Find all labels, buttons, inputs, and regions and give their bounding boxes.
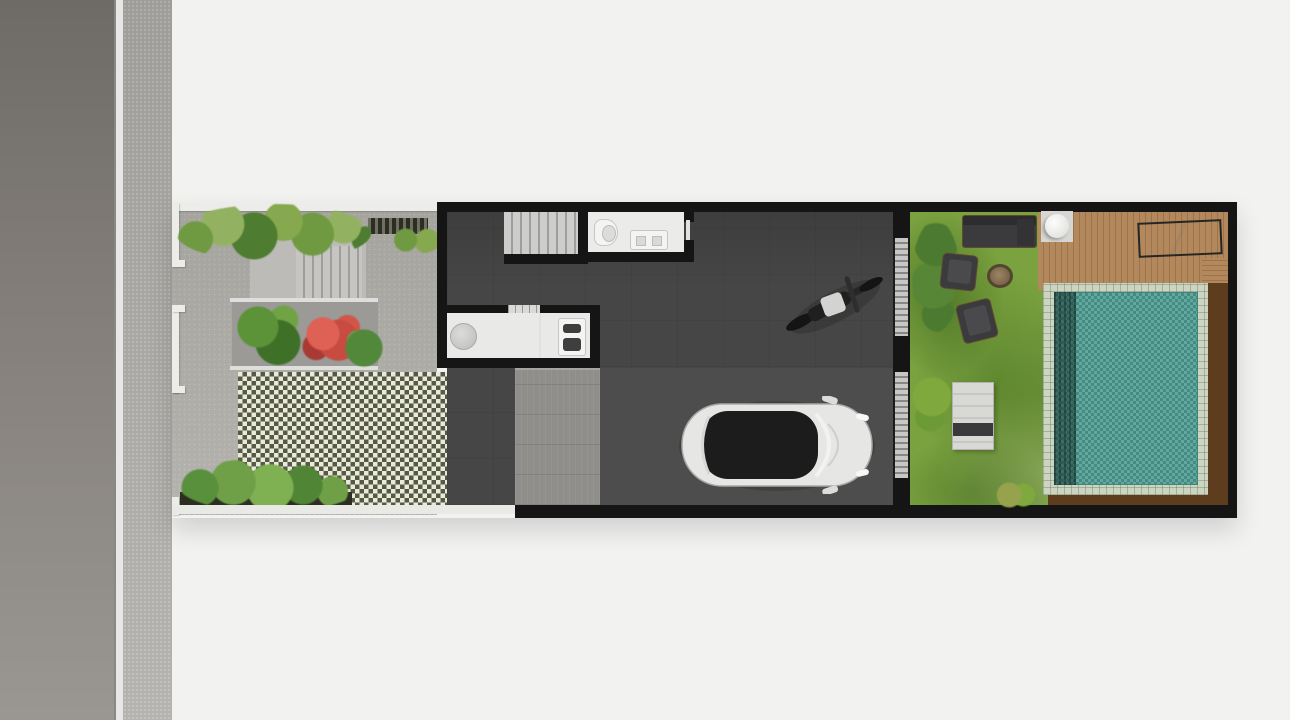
pool-shelf-shadow (1054, 292, 1076, 485)
round-side-table (1045, 214, 1069, 238)
cooktop-sink (558, 318, 586, 356)
bathroom-door-leaf (686, 220, 690, 240)
front-hedge (176, 204, 371, 262)
rear-wall-segment (893, 202, 910, 238)
garden-shrub (990, 482, 1038, 508)
pool-timber-edge (1208, 283, 1228, 505)
rear-wall-segment (893, 478, 910, 518)
glass-sliding-door (893, 372, 910, 478)
bench-seat (953, 423, 993, 436)
fern-border (178, 458, 362, 512)
kitchen-wall-bottom (437, 358, 600, 368)
boundary-wall-cap (172, 386, 185, 393)
floor-plan-scene (0, 0, 1290, 720)
plan-bottom-edge (172, 505, 520, 514)
bathroom-wall (578, 252, 694, 262)
stair-wall (504, 254, 578, 264)
armchair (939, 252, 979, 292)
house-wall-top (437, 202, 1237, 212)
outdoor-sofa (962, 215, 1037, 248)
rear-wall-segment (893, 336, 910, 372)
asphalt-road (0, 0, 116, 720)
shrub (390, 226, 442, 254)
house-wall-bottom (515, 505, 1237, 518)
concrete-patio (515, 368, 600, 505)
garden-shrub (910, 372, 954, 434)
bathroom-door-post (684, 240, 694, 262)
curb-line (114, 0, 123, 720)
green-bush (342, 324, 386, 372)
car (676, 396, 878, 494)
bench-table (952, 382, 994, 450)
staircase (504, 212, 578, 254)
kitchen-wall-top (437, 305, 508, 313)
plan-border-right (1228, 202, 1237, 518)
round-basin (450, 323, 477, 350)
boundary-wall-cap (172, 305, 185, 312)
sidewalk (123, 0, 172, 720)
sun-lounger (1137, 219, 1222, 258)
fire-pit (987, 264, 1013, 288)
kitchen-door-threshold (508, 305, 540, 313)
sofa-chaise (1017, 219, 1034, 246)
toilet (594, 219, 618, 246)
boundary-wall-segment (172, 305, 179, 393)
house-wall-left (437, 202, 447, 368)
boundary-wall-cap (172, 260, 185, 267)
vanity-sink (630, 230, 668, 250)
